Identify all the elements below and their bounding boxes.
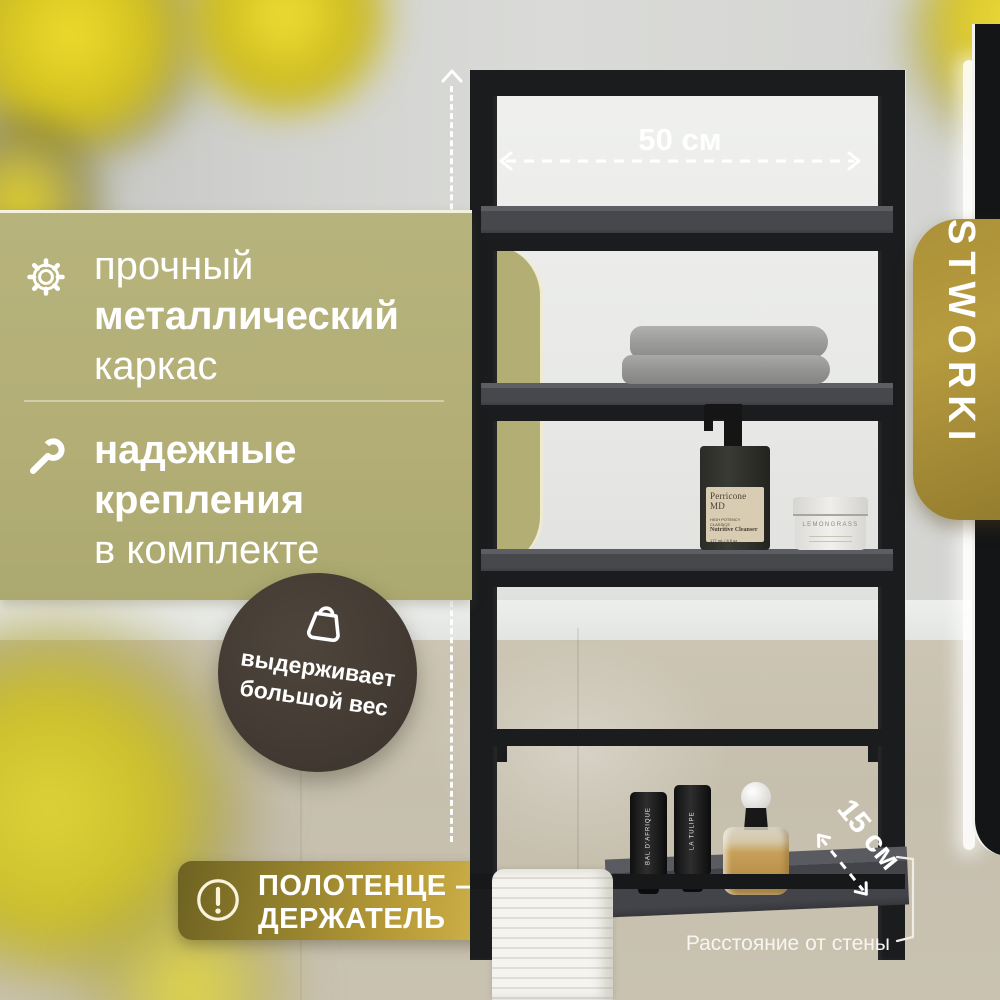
- folded-towel: [630, 326, 828, 358]
- pump-bottle-nozzle: [704, 417, 713, 431]
- feature2-line1: надежные: [94, 425, 319, 475]
- shelf-crossbar-3: [481, 571, 893, 587]
- cleanser-line3: 177 mL / 6 fl oz: [710, 538, 760, 543]
- product-card: ПОЛОТЕНЦЕ – ДЕРЖАТЕЛЬ Perricone MD HIGH …: [0, 0, 1000, 1000]
- towel-holder-pill: ПОЛОТЕНЦЕ – ДЕРЖАТЕЛЬ: [178, 861, 490, 940]
- cream-jar-label: LEMONGRASS: [795, 522, 866, 528]
- wall-distance-note: Расстояние от стены: [686, 932, 890, 956]
- cleanser-line2: Nutritive Cleanser: [710, 527, 760, 534]
- shelf-crossbar-4: [481, 729, 893, 746]
- feature2-line2: крепления: [94, 475, 319, 525]
- weight-capacity-badge: выдерживает большой вес: [218, 573, 417, 772]
- shelf-board-1: [481, 206, 893, 234]
- towel-holder-label: ПОЛОТЕНЦЕ – ДЕРЖАТЕЛЬ: [258, 870, 472, 936]
- wrench-icon: [24, 435, 68, 479]
- feature1-line3: каркас: [94, 341, 399, 391]
- panel-divider: [24, 400, 444, 402]
- tube1-label: BAL D'AFRIQUE: [630, 792, 667, 880]
- shelf-board-2: [481, 383, 893, 406]
- cleanser-line1: HIGH POTENCY CLASSICS: [710, 517, 760, 527]
- weight-icon: [295, 592, 356, 653]
- tube1-name: BAL D'AFRIQUE: [646, 807, 652, 865]
- feature1-line2: металлический: [94, 291, 399, 341]
- weight-badge-text: выдерживает большой вес: [213, 639, 418, 726]
- shelf-crossbar-1: [481, 233, 893, 251]
- pill-line1: ПОЛОТЕНЦЕ –: [258, 870, 472, 903]
- features-panel: прочный металлический каркас надежные кр…: [0, 210, 472, 600]
- shelf-top-bar: [470, 70, 905, 96]
- gear-icon: [24, 255, 68, 299]
- cleanser-brand: Perricone MD: [710, 491, 760, 511]
- tube2-label: LA TULIPE: [674, 785, 711, 877]
- brand-logo-text: STWORKI: [939, 219, 982, 520]
- shelf-board-3: [481, 549, 893, 572]
- cleanser-label: Perricone MD HIGH POTENCY CLASSICS Nutri…: [706, 487, 764, 542]
- corner-brace: [497, 746, 507, 762]
- exclamation-icon: [194, 876, 242, 924]
- folded-towel: [622, 355, 830, 384]
- pill-line2: ДЕРЖАТЕЛЬ: [258, 903, 472, 936]
- cream-jar-lid: [793, 497, 868, 516]
- feature1-line1: прочный: [94, 241, 399, 291]
- hand-cream-tube-2: LA TULIPE: [674, 785, 711, 877]
- feature-1-text: прочный металлический каркас: [94, 241, 399, 391]
- hanging-towel: [492, 869, 613, 1000]
- corner-brace: [868, 746, 878, 762]
- shelf-crossbar-2: [481, 405, 893, 421]
- height-arrow-head: [440, 68, 464, 84]
- jar-label-line: [809, 541, 852, 542]
- shelf-post-left: [470, 70, 497, 960]
- width-dimension-arrow: [496, 150, 864, 172]
- perfume-sphere-cap: [741, 782, 771, 812]
- hand-cream-tube-1: BAL D'AFRIQUE: [630, 792, 667, 880]
- tube2-name: LA TULIPE: [690, 812, 696, 851]
- depth-bracket: [893, 849, 919, 947]
- brand-badge: STWORKI: [913, 219, 1000, 520]
- feature-2-text: надежные крепления в комплекте: [94, 425, 319, 575]
- weight-badge-content: выдерживает большой вес: [205, 560, 430, 785]
- cream-jar: LEMONGRASS: [795, 516, 866, 550]
- jar-label-line: [809, 536, 852, 537]
